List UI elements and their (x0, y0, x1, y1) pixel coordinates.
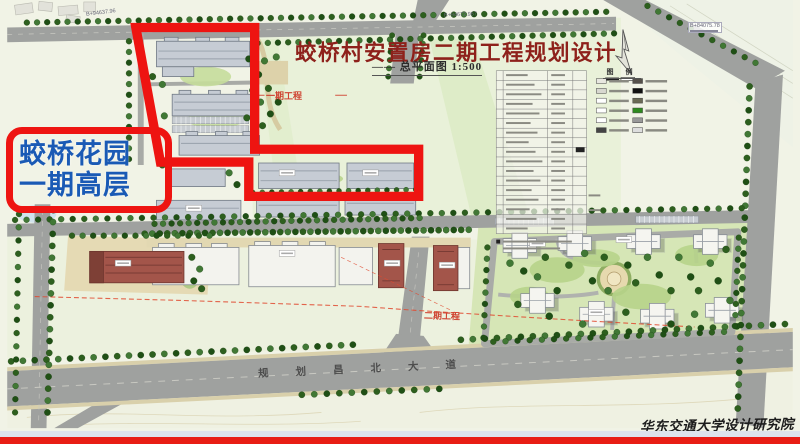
phase2-label: 二期工程 (424, 309, 460, 323)
illegible-coordinate-line (690, 30, 718, 32)
slide-canvas: 蛟桥村安置房二期工程规划设计 —— 总平面图 1:500 蛟桥花园 一期高层 一… (0, 0, 800, 444)
survey-coordinate-top-center: B+94672.967 (444, 11, 477, 18)
page-subtitle: —— 总平面图 1:500 (372, 58, 482, 76)
phase1-highlight-label-box: 蛟桥花园 一期高层 (6, 127, 172, 213)
phase1-label: 一期工程 (266, 89, 302, 102)
overlay-line1: 蛟桥花园 (19, 139, 165, 170)
survey-coordinate-top-right: B+84075.78 (688, 22, 722, 33)
legend-header: 图 例 (603, 67, 641, 79)
indicator-table (496, 71, 600, 250)
overlay-line2: 一期高层 (19, 170, 165, 201)
bottom-red-bar (0, 437, 800, 444)
